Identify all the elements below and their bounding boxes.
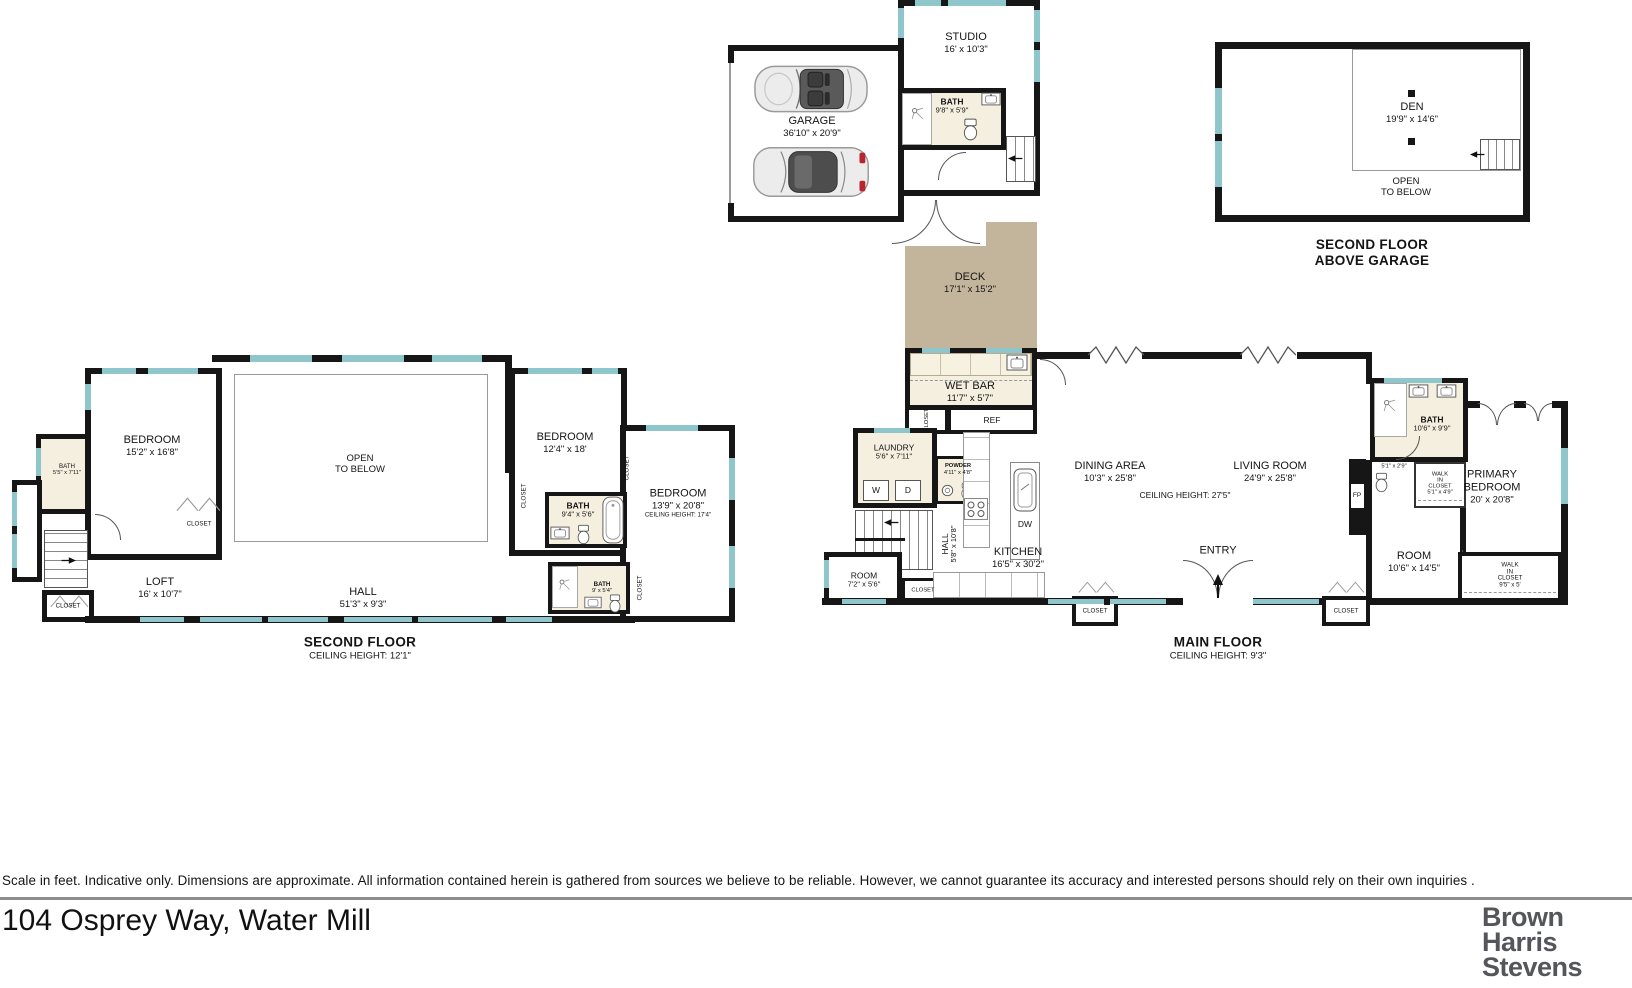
closet-label: CLOSET bbox=[1083, 607, 1108, 614]
window bbox=[1215, 141, 1222, 187]
dryer-label: D bbox=[905, 485, 911, 495]
window bbox=[915, 0, 941, 6]
open-line: OPEN bbox=[1381, 176, 1431, 187]
room-dims: 16'5" x 30'2" bbox=[992, 559, 1044, 570]
french-door-arc bbox=[1478, 403, 1497, 425]
stair-arrow-icon bbox=[1008, 154, 1024, 163]
room-name: DINING AREA bbox=[1075, 460, 1146, 473]
room-dims: 10'6" x 14'5" bbox=[1388, 563, 1440, 574]
room-label-garage-bath: BATH 9'8" x 5'9" bbox=[936, 97, 969, 116]
room-dims: 11'7" x 5'7" bbox=[945, 393, 995, 404]
stair-arrow-icon bbox=[1470, 150, 1486, 159]
sink-icon bbox=[550, 526, 570, 540]
kitchen-counter-bottom bbox=[933, 572, 1045, 598]
closet-label: CLOSET bbox=[638, 576, 645, 601]
wic2-label: WALK IN CLOSET 9'5" x 5' bbox=[1498, 563, 1523, 590]
room-dims: 4'11" x 4'8" bbox=[944, 470, 972, 477]
post bbox=[1408, 138, 1415, 145]
french-door-arc bbox=[1538, 403, 1552, 421]
french-door-arc bbox=[1524, 403, 1538, 421]
bathtub-icon bbox=[602, 495, 624, 545]
window bbox=[140, 617, 184, 622]
window-tick bbox=[412, 616, 418, 623]
room-note: CEILING HEIGHT: 17'4" bbox=[645, 511, 711, 518]
room-dims: 5'8" x 10'8" bbox=[951, 526, 959, 563]
room-dims: 17'1" x 15'2" bbox=[944, 284, 996, 295]
window bbox=[506, 617, 552, 622]
room-label-powder: POWDER 4'11" x 4'8" bbox=[944, 463, 972, 477]
room-name: PRIMARY bbox=[1464, 468, 1521, 481]
divider-rule bbox=[0, 897, 1632, 900]
room-label-sf-bath2: BATH 9'4" x 5'6" bbox=[562, 501, 595, 520]
room-label-sf-bath3: BATH 9' x 5'4" bbox=[592, 581, 612, 595]
room-label-dining: DINING AREA 10'3" x 25'8" bbox=[1075, 460, 1146, 484]
window bbox=[148, 368, 198, 374]
window bbox=[36, 448, 41, 476]
room-name: WET BAR bbox=[945, 380, 995, 393]
window bbox=[85, 384, 91, 410]
room-dims: 5'6" x 7'11" bbox=[874, 453, 914, 462]
window bbox=[874, 428, 910, 433]
toilet-icon bbox=[608, 594, 622, 613]
window bbox=[842, 599, 886, 604]
room-dims: 16' x 10'7" bbox=[138, 589, 181, 600]
stair-arrow-icon bbox=[60, 556, 76, 565]
closet-label: CLOSET bbox=[625, 456, 632, 481]
plan-title-line: SECOND FLOOR bbox=[1315, 237, 1430, 253]
room-label-loft: LOFT 16' x 10'7" bbox=[138, 576, 181, 600]
toilet-icon bbox=[576, 524, 591, 545]
room-name: KITCHEN bbox=[992, 546, 1044, 559]
floorplan-canvas: GARAGE 36'10" x 20'9" STUDIO 16' x 10'3"… bbox=[0, 0, 1632, 988]
garage-door-gap bbox=[726, 63, 737, 203]
room-label-sf-bath1: BATH 5'5" x 7'11" bbox=[53, 463, 81, 477]
window bbox=[1034, 10, 1040, 42]
room-name: ROOM bbox=[1388, 550, 1440, 563]
window bbox=[432, 355, 482, 362]
plan-subtitle: CEILING HEIGHT: 12'1" bbox=[304, 650, 416, 661]
plan-title-above-garage: SECOND FLOOR ABOVE GARAGE bbox=[1315, 237, 1430, 269]
car-convertible-icon bbox=[752, 60, 870, 118]
window bbox=[1034, 50, 1040, 82]
disclaimer-text: Scale in feet. Indicative only. Dimensio… bbox=[2, 873, 1475, 888]
closet-rod-line bbox=[1418, 500, 1462, 501]
plan-title-main-floor: MAIN FLOOR CEILING HEIGHT: 9'3" bbox=[1170, 634, 1267, 661]
window bbox=[729, 546, 735, 588]
window-tick bbox=[1104, 598, 1110, 605]
window bbox=[250, 355, 312, 362]
entry-label: ENTRY bbox=[1199, 545, 1236, 558]
closet-label: CLOSET bbox=[522, 484, 529, 509]
sink-icon bbox=[1408, 384, 1429, 398]
wic-dims: 5'1" x 4'9" bbox=[1427, 490, 1452, 496]
closet-chevron-icon bbox=[1328, 580, 1364, 594]
window bbox=[1215, 88, 1222, 134]
closet-rod-line bbox=[1464, 592, 1556, 593]
window bbox=[12, 492, 17, 526]
room-dims: 9'4" x 5'6" bbox=[562, 511, 595, 520]
dw-label: DW bbox=[1018, 519, 1032, 529]
room-name: STUDIO bbox=[944, 31, 987, 44]
room-name: LIVING ROOM bbox=[1233, 460, 1306, 473]
room-dims: 5'5" x 7'11" bbox=[53, 470, 81, 477]
closet-label: CLOSET bbox=[56, 602, 81, 609]
window bbox=[948, 0, 1006, 6]
window bbox=[12, 534, 17, 568]
sink-icon bbox=[584, 596, 602, 609]
room-label-den: DEN 19'9" x 14'6" bbox=[1386, 101, 1438, 125]
room-dims: 10'3" x 25'8" bbox=[1075, 473, 1146, 484]
wall bbox=[1366, 460, 1372, 602]
sink-icon bbox=[981, 92, 1001, 106]
door-arc bbox=[1040, 359, 1066, 385]
room-name: DECK bbox=[944, 271, 996, 284]
window bbox=[592, 368, 618, 374]
window bbox=[1384, 378, 1442, 383]
toilet-icon bbox=[1374, 472, 1389, 493]
window-tick bbox=[262, 616, 268, 623]
wc-dims-label: 5'1" x 2'9" bbox=[1381, 464, 1406, 471]
room-label-primary-bath: BATH 10'6" x 9'9" bbox=[1414, 415, 1451, 434]
room-dims: 12'4" x 18' bbox=[537, 444, 594, 455]
room-label-sf-hall: HALL 51'3" x 9'3" bbox=[340, 586, 387, 610]
window bbox=[342, 355, 404, 362]
wall bbox=[1142, 352, 1242, 359]
plan-title-line: ABOVE GARAGE bbox=[1315, 253, 1430, 269]
room-dims: 7'2" x 5'6" bbox=[848, 581, 881, 590]
wic-dims: 9'5" x 5' bbox=[1498, 583, 1523, 590]
window bbox=[729, 458, 735, 500]
closet-label: CLOSET bbox=[924, 408, 930, 431]
kitchen-counter-left bbox=[963, 432, 990, 548]
window bbox=[824, 560, 829, 588]
fp-label: FP bbox=[1353, 492, 1361, 500]
french-door-arc bbox=[1497, 403, 1516, 425]
plan-title-second-floor: SECOND FLOOR CEILING HEIGHT: 12'1" bbox=[304, 634, 416, 661]
closet-chevron-icon bbox=[176, 492, 220, 516]
room-name: GARAGE bbox=[783, 115, 840, 128]
window bbox=[646, 425, 698, 431]
plan-title: SECOND FLOOR bbox=[304, 634, 416, 650]
address-title: 104 Osprey Way, Water Mill bbox=[2, 904, 371, 938]
closet-label: CLOSET bbox=[1334, 607, 1359, 614]
room-dims: 24'9" x 25'8" bbox=[1233, 473, 1306, 484]
room-label-living: LIVING ROOM 24'9" x 25'8" bbox=[1233, 460, 1306, 484]
room-name: BEDROOM bbox=[1464, 481, 1521, 494]
open-line: TO BELOW bbox=[335, 464, 385, 475]
window bbox=[986, 348, 1022, 353]
room-name: POWDER bbox=[944, 463, 972, 470]
plan-subtitle: CEILING HEIGHT: 9'3" bbox=[1170, 650, 1267, 661]
window bbox=[898, 8, 904, 38]
room-dims: 19'9" x 14'6" bbox=[1386, 114, 1438, 125]
stair-landing-divider bbox=[855, 538, 905, 541]
room-label-main-hall: HALL 5'8" x 10'8" bbox=[941, 526, 959, 563]
room-label-room-small: ROOM 7'2" x 5'6" bbox=[848, 571, 881, 590]
room-name: BEDROOM bbox=[645, 487, 711, 500]
stairs-den bbox=[1480, 139, 1520, 170]
closet-chevron-icon bbox=[1078, 580, 1114, 594]
stair-arrow-icon bbox=[884, 518, 900, 527]
room-dims: 10'6" x 9'9" bbox=[1414, 425, 1451, 434]
room-name: BEDROOM bbox=[537, 431, 594, 444]
room-dims: 13'9" x 20'8" bbox=[645, 500, 711, 511]
room-name: BEDROOM bbox=[124, 434, 181, 447]
shower-icon bbox=[1380, 396, 1400, 416]
room-dims: 51'3" x 9'3" bbox=[340, 599, 387, 610]
window bbox=[344, 617, 492, 622]
room-label-sf-bedroom3: BEDROOM 13'9" x 20'8" CEILING HEIGHT: 17… bbox=[645, 487, 711, 518]
wall bbox=[1297, 352, 1372, 359]
wall-break-zigzag-icon bbox=[1240, 344, 1296, 366]
window bbox=[528, 368, 582, 374]
open-to-below-label: OPEN TO BELOW bbox=[1381, 176, 1431, 198]
ref-label: REF bbox=[984, 415, 1001, 425]
car-suv-icon bbox=[750, 140, 872, 204]
entry-arrow-icon bbox=[1212, 574, 1224, 600]
room-name: HALL bbox=[340, 586, 387, 599]
room-dims: 9'8" x 5'9" bbox=[936, 107, 969, 116]
room-dims: 16' x 10'3" bbox=[944, 44, 987, 55]
shower-icon bbox=[556, 576, 574, 594]
washer-label: W bbox=[872, 485, 880, 495]
room-label-primary-bedroom: PRIMARY BEDROOM 20' x 20'8" bbox=[1464, 468, 1521, 505]
room-name: BATH bbox=[53, 463, 81, 470]
window bbox=[1561, 448, 1568, 504]
window bbox=[102, 368, 136, 374]
room-label-kitchen: KITCHEN 16'5" x 30'2" bbox=[992, 546, 1044, 570]
open-line: TO BELOW bbox=[1381, 187, 1431, 198]
cooktop-icon bbox=[964, 498, 988, 520]
closet-label: CLOSET bbox=[187, 520, 212, 527]
sink-icon bbox=[1006, 354, 1028, 371]
brand-line: Stevens bbox=[1482, 955, 1582, 980]
room-label-sf-bedroom1: BEDROOM 15'2" x 16'8" bbox=[124, 434, 181, 458]
garage-door-line bbox=[729, 63, 731, 203]
wall bbox=[1035, 352, 1090, 359]
open-to-below-label: OPEN TO BELOW bbox=[335, 453, 385, 475]
brand-logo: Brown Harris Stevens bbox=[1482, 905, 1582, 980]
room-label-studio: STUDIO 16' x 10'3" bbox=[944, 31, 987, 55]
room-dims: 20' x 20'8" bbox=[1464, 494, 1521, 505]
sink-icon bbox=[941, 484, 954, 497]
open-line: OPEN bbox=[335, 453, 385, 464]
room-name: DEN bbox=[1386, 101, 1438, 114]
room-name: BATH bbox=[592, 581, 612, 588]
room-dims: 36'10" x 20'9" bbox=[783, 128, 840, 139]
room-label-laundry: LAUNDRY 5'6" x 7'11" bbox=[874, 443, 914, 462]
plan-title: MAIN FLOOR bbox=[1170, 634, 1267, 650]
window bbox=[922, 348, 950, 353]
wic1-label: WALK IN CLOSET 5'1" x 4'9" bbox=[1427, 472, 1452, 497]
shower-icon bbox=[908, 104, 928, 124]
room-label-garage: GARAGE 36'10" x 20'9" bbox=[783, 115, 840, 139]
wall bbox=[1460, 508, 1466, 554]
window bbox=[1253, 599, 1319, 604]
closet-label: CLOSET bbox=[911, 588, 934, 595]
ceiling-note: CEILING HEIGHT: 27'5" bbox=[1139, 490, 1230, 500]
room-label-sf-bedroom2: BEDROOM 12'4" x 18' bbox=[537, 431, 594, 455]
toilet-icon bbox=[962, 118, 979, 141]
room-label-wetbar: WET BAR 11'7" x 5'7" bbox=[945, 380, 995, 404]
room-name: LOFT bbox=[138, 576, 181, 589]
room-label-deck: DECK 17'1" x 15'2" bbox=[944, 271, 996, 295]
post bbox=[1408, 90, 1415, 97]
wall-break-zigzag-icon bbox=[1088, 344, 1144, 366]
room-label-room: ROOM 10'6" x 14'5" bbox=[1388, 550, 1440, 574]
sink-icon bbox=[1436, 384, 1457, 398]
room-dims: 15'2" x 16'8" bbox=[124, 447, 181, 458]
room-dims: 9' x 5'4" bbox=[592, 588, 612, 595]
dishwasher-icon bbox=[1013, 468, 1037, 512]
